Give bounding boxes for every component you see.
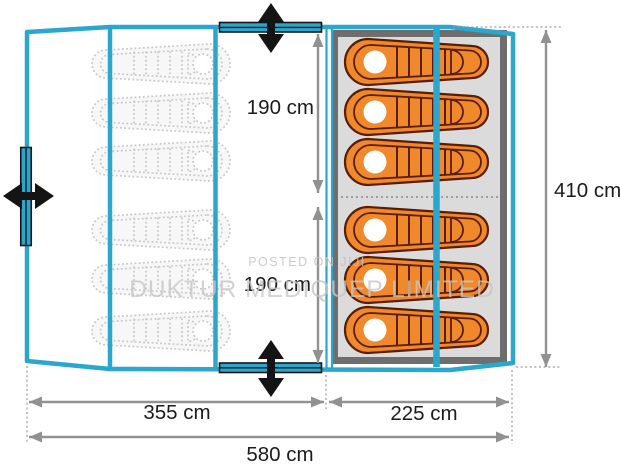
ghost-sleeping-bag xyxy=(92,44,230,84)
ghost-sleeping-bag xyxy=(92,210,230,250)
diagram-canvas: 190 cm 190 cm 410 cm 355 cm 225 cm 580 c… xyxy=(0,0,620,465)
label-410: 410 cm xyxy=(554,179,620,202)
label-355: 355 cm xyxy=(143,401,210,424)
watermark-line1: POSTED ON JIJI xyxy=(248,255,366,269)
sleeping-bag xyxy=(345,207,488,253)
tent-floorplan-diagram: 190 cm 190 cm 410 cm 355 cm 225 cm 580 c… xyxy=(0,0,620,465)
sleeping-bag xyxy=(345,89,488,135)
sleeping-bag xyxy=(345,139,488,185)
watermark-line2: DUKTUR MEDIQUEP LIMITED xyxy=(129,276,495,303)
label-190-top: 190 cm xyxy=(247,96,314,119)
ghost-sleeping-bag xyxy=(92,311,230,351)
sleeping-bag xyxy=(345,307,488,353)
label-580: 580 cm xyxy=(246,443,313,465)
label-225: 225 cm xyxy=(390,402,457,425)
sleeping-bag xyxy=(345,39,488,85)
ghost-sleeping-bag xyxy=(92,93,230,133)
ghost-sleeping-bag xyxy=(92,141,230,181)
